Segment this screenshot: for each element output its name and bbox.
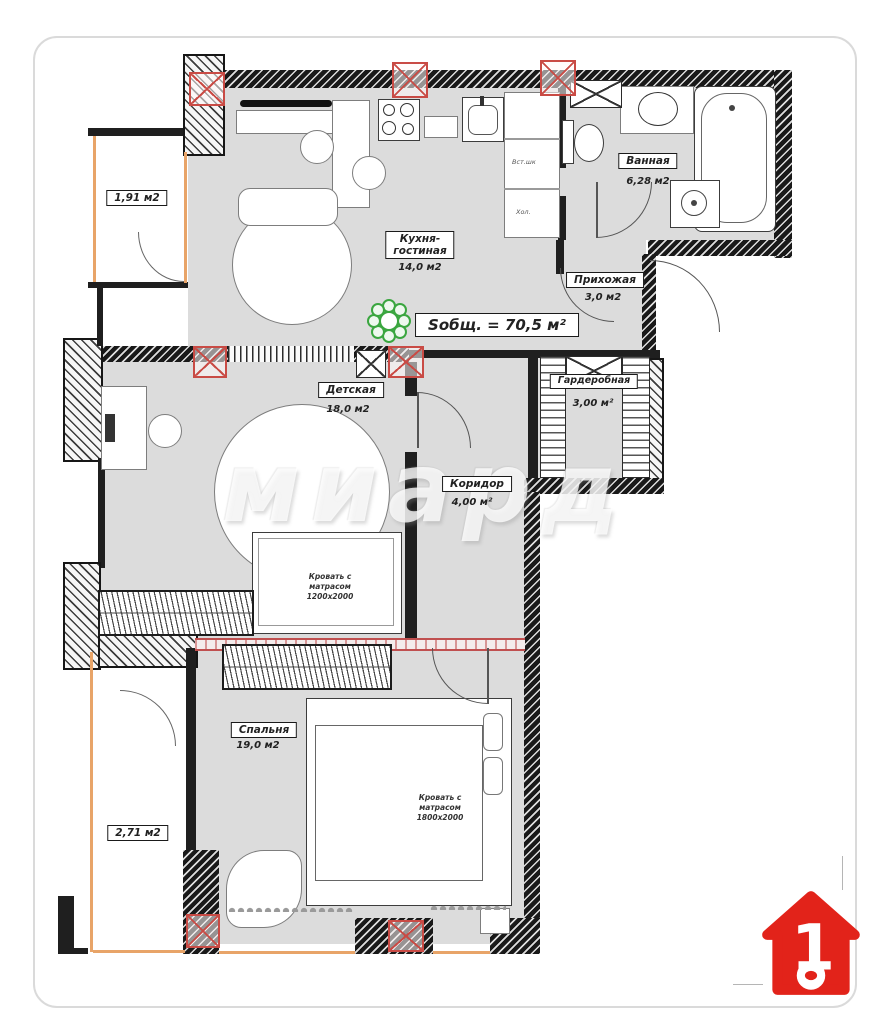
floorplan-page: Вст.шк Хол. (0, 0, 889, 1024)
radiator-band (228, 346, 354, 362)
sofa-icon (238, 188, 338, 226)
window-line (93, 950, 185, 953)
room-label-kids-room: Детская (318, 382, 384, 398)
curtain-icon (430, 900, 506, 911)
tv-stand (236, 110, 340, 134)
room-area-bedroom: 19,0 м2 (236, 740, 279, 751)
cabinet-label: Вст.шк (512, 158, 536, 166)
kitchen-sink-icon (462, 97, 504, 142)
column-marker (388, 346, 424, 378)
room-label-bedroom: Спальня (231, 722, 297, 738)
chair-icon (352, 156, 386, 190)
door-leaf (596, 182, 598, 238)
wall-wardrobe-left (528, 350, 538, 480)
chair-icon (300, 130, 334, 164)
wall-bedroom-right (524, 492, 540, 952)
wall-right-bathroom (774, 70, 792, 258)
cabinet-divider (504, 188, 560, 190)
microwave-icon (424, 116, 458, 138)
logo-house-icon: 1 (760, 886, 862, 1006)
door-leaf (487, 648, 489, 704)
window-line (184, 152, 187, 283)
column-marker (186, 914, 220, 948)
stove-icon (378, 99, 420, 141)
room-label-bathroom: Ванная (618, 153, 677, 169)
toilet-tank (562, 120, 574, 164)
plant-icon (366, 298, 412, 344)
balcony-corner-wall (58, 896, 74, 954)
room-area-hallway: 3,0 м2 (585, 292, 621, 303)
wall-left-block-lower (63, 562, 101, 670)
wall-kids-bedroom-hatch (98, 634, 198, 668)
bedside-table (480, 908, 510, 934)
burner (383, 104, 395, 116)
wall-kitchen-corridor (409, 350, 529, 358)
wall-bedroom-left (186, 648, 196, 852)
kitchen-island (332, 100, 370, 208)
washing-machine-icon (670, 180, 720, 228)
room-area-wardrobe: 3,00 м² (573, 398, 614, 409)
column-marker (193, 346, 227, 378)
cabinet-label: Хол. (516, 208, 531, 216)
balcony-top-bottom-wall (88, 282, 188, 288)
wall-bathroom-bottom (648, 240, 792, 256)
room-area-kids-room: 18,0 м2 (326, 404, 369, 415)
burner (382, 121, 396, 135)
kids-bed-label: Кровать с матрасом 1200х2000 (307, 572, 354, 601)
room-label-corridor: Коридор (442, 476, 512, 492)
room-area-bathroom: 6,28 м2 (626, 176, 669, 187)
column-marker (388, 920, 424, 952)
window-line (433, 951, 490, 954)
toilet-icon (574, 124, 604, 162)
wall-wardrobe-right (648, 358, 664, 480)
room-label-kitchen: Кухня- гостиная (385, 231, 454, 259)
door-leaf (417, 392, 419, 448)
curtain-icon (228, 902, 354, 913)
tv-icon (240, 100, 332, 107)
column-marker (392, 62, 428, 98)
balcony-corner-wall (58, 948, 88, 954)
window-line (90, 652, 93, 952)
room-label-hallway: Прихожая (566, 272, 644, 288)
total-area-label: Sобщ. = 70,5 м² (415, 313, 579, 337)
column-marker (540, 60, 576, 96)
room-area-kitchen: 14,0 м2 (398, 262, 441, 273)
wall-kids-left (98, 458, 105, 568)
chair-icon (148, 414, 182, 448)
monitor-icon (105, 414, 115, 442)
logo-connector-line (733, 984, 763, 985)
window-line (219, 951, 355, 954)
master-bed-icon (306, 698, 512, 906)
master-bed-label: Кровать с матрасом 1800х2000 (417, 793, 464, 822)
balcony-top-wall (88, 128, 188, 136)
wall-kids-right-lower (405, 452, 417, 648)
closet-hangers-icon (222, 644, 392, 690)
logo-connector-line (842, 856, 843, 890)
cabinet-divider (504, 138, 560, 140)
wall-left-stub (97, 288, 103, 346)
burner (402, 123, 414, 135)
balcony-label-top: 1,91 м2 (106, 190, 167, 206)
room-label-wardrobe: Гардеробная (550, 374, 638, 389)
closet-hangers-icon (98, 590, 254, 636)
armchair-icon (226, 850, 302, 928)
balcony-label-bottom: 2,71 м2 (107, 825, 168, 841)
burner (400, 103, 414, 117)
room-area-corridor: 4,00 м² (452, 497, 493, 508)
bathroom-sink-icon (638, 92, 678, 126)
wall-left-block-upper (63, 338, 103, 462)
wall-wardrobe-bottom (524, 478, 664, 494)
column-box-icon (356, 350, 386, 378)
column-marker (189, 72, 225, 106)
vent-shaft-icon (570, 80, 622, 108)
window-line (93, 136, 96, 282)
